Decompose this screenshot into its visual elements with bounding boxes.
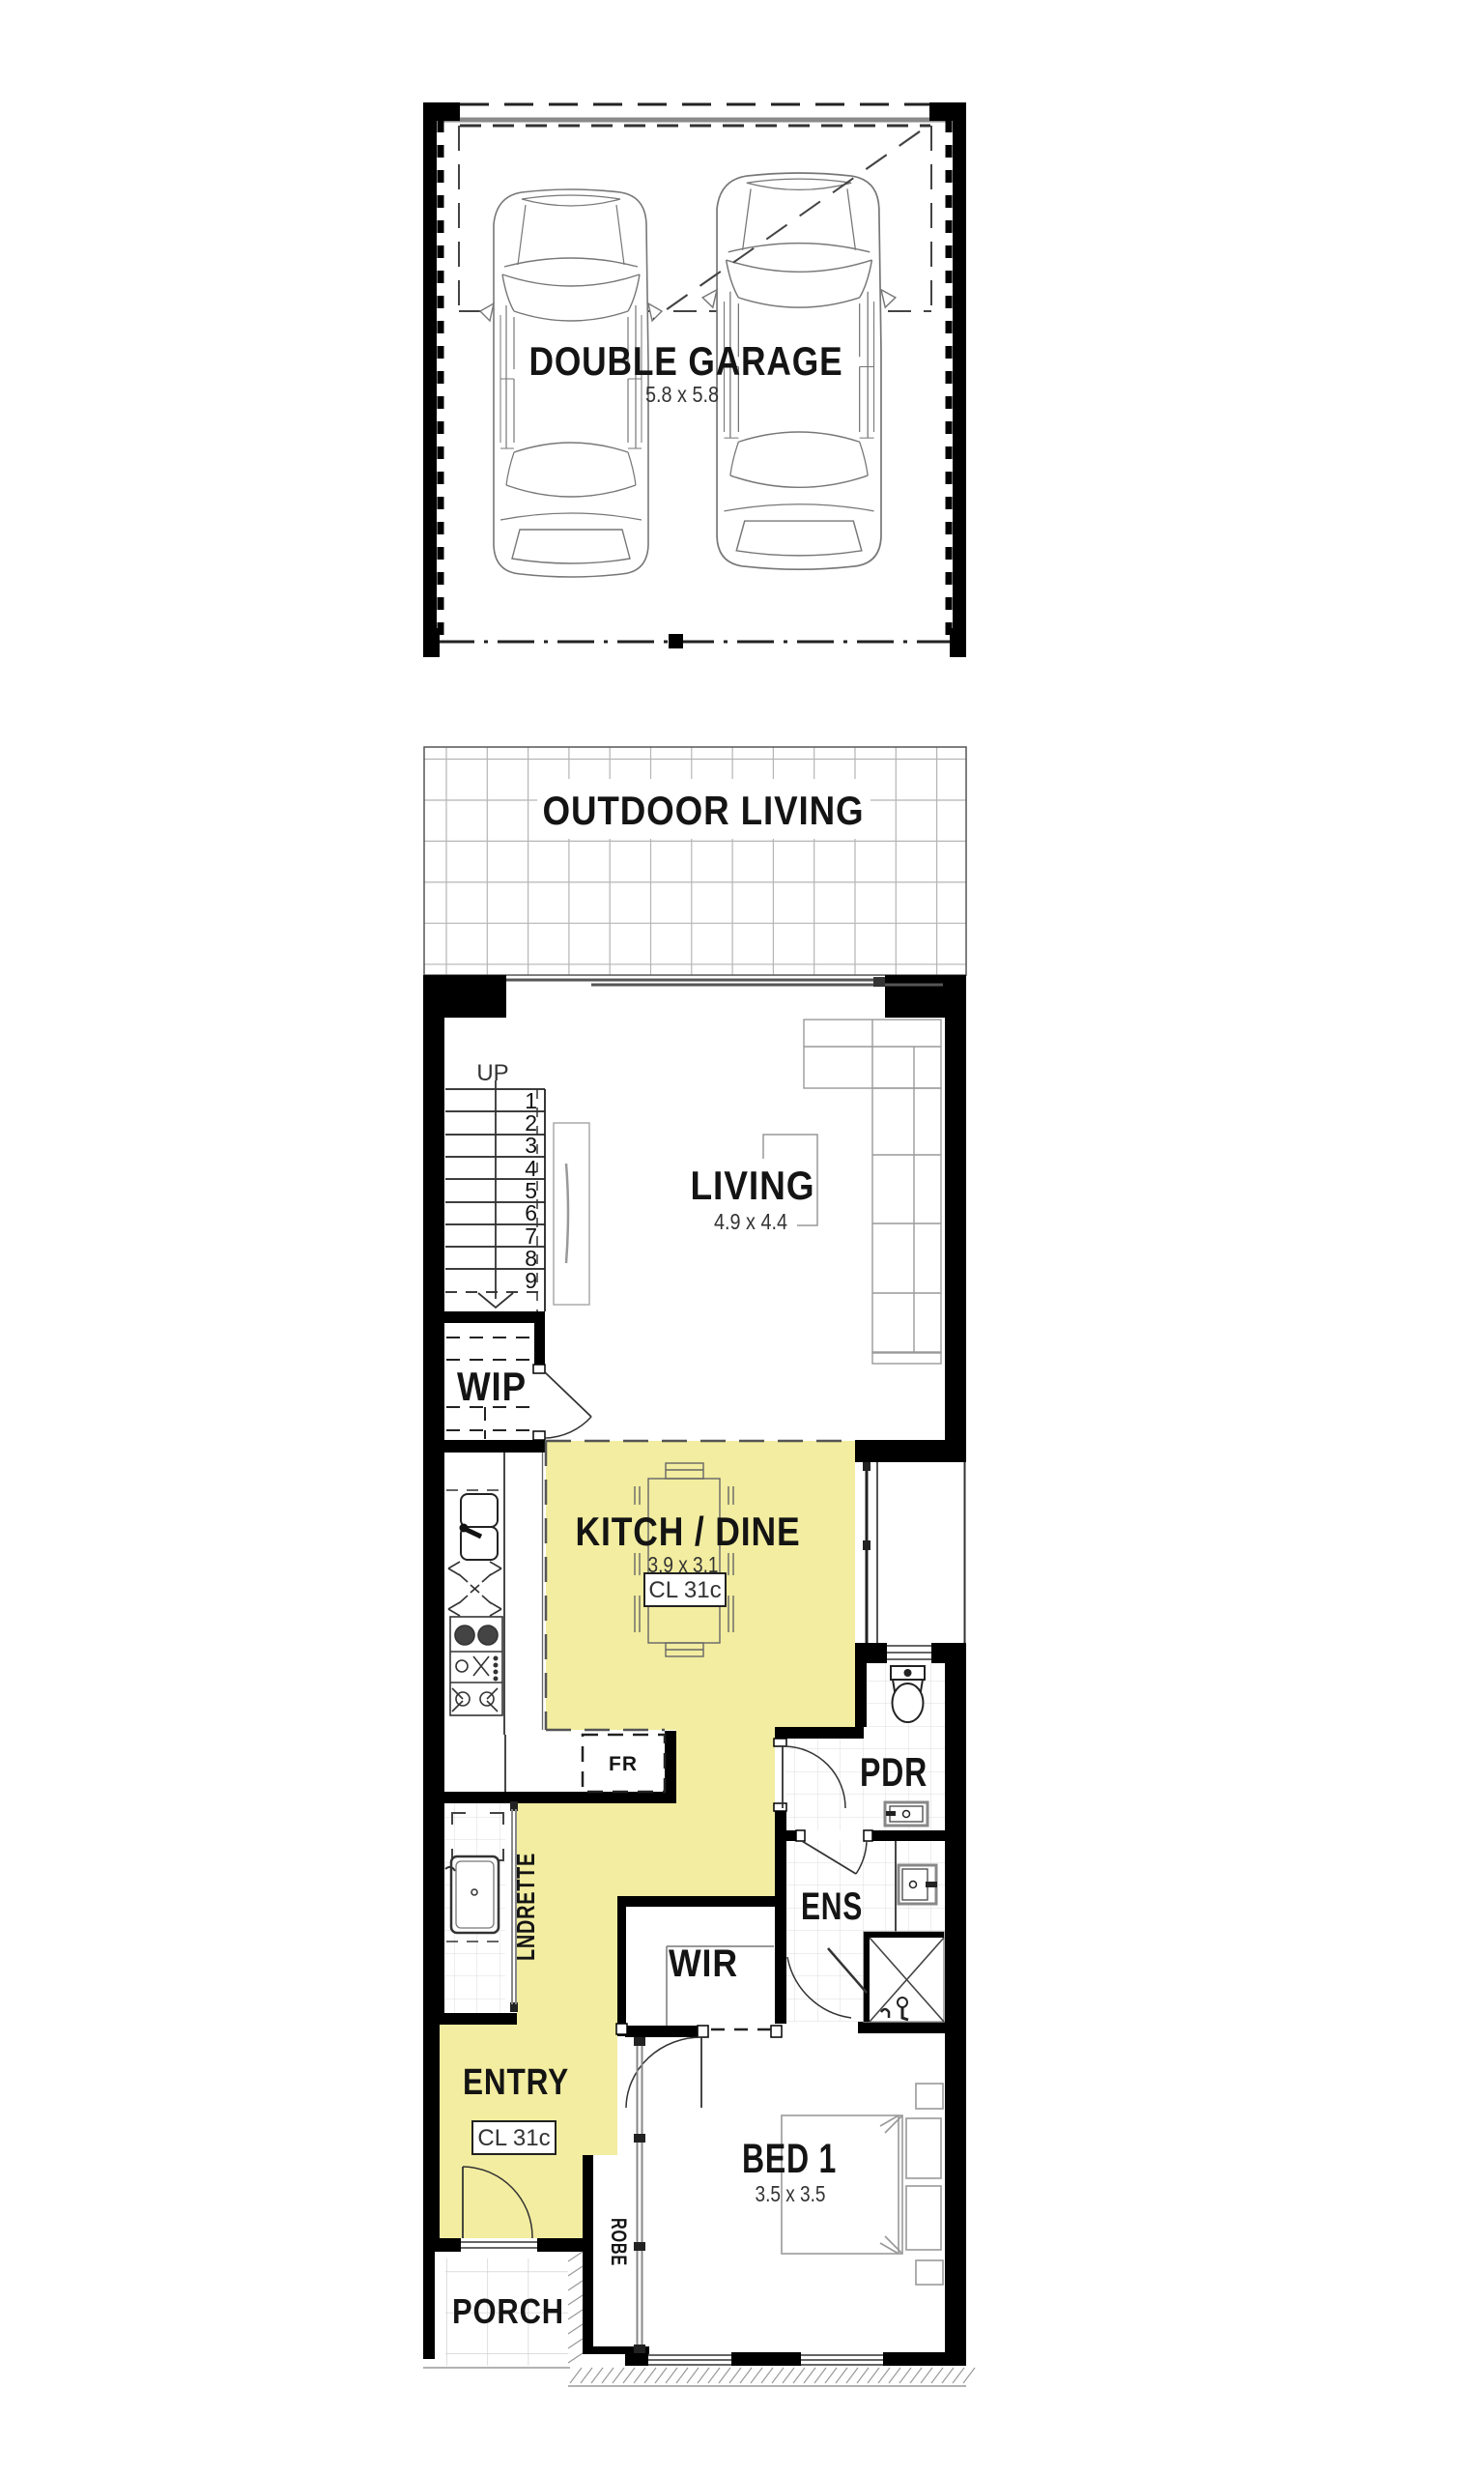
svg-text:4.9 x 4.4: 4.9 x 4.4 [714,1209,787,1234]
svg-text:CL 31c: CL 31c [477,2125,550,2151]
svg-text:FR: FR [609,1753,638,1775]
svg-text:BED 1: BED 1 [742,2136,837,2182]
svg-text:PDR: PDR [860,1749,927,1795]
svg-text:LNDRETTE: LNDRETTE [511,1853,540,1961]
svg-text:WIP: WIP [457,1364,527,1409]
svg-text:CL 31c: CL 31c [648,1577,721,1603]
svg-text:WIR: WIR [669,1942,738,1985]
svg-text:ENTRY: ENTRY [463,2062,569,2103]
svg-text:3.5 x 3.5: 3.5 x 3.5 [756,2181,826,2206]
svg-text:9: 9 [525,1268,537,1293]
svg-text:UP: UP [476,1060,508,1086]
svg-text:3: 3 [525,1133,537,1158]
svg-text:KITCH / DINE: KITCH / DINE [576,1509,801,1554]
svg-text:OUTDOOR LIVING: OUTDOOR LIVING [543,788,865,833]
svg-text:ROBE: ROBE [607,2218,631,2266]
svg-text:6: 6 [525,1200,537,1225]
svg-text:PORCH: PORCH [452,2291,564,2331]
svg-text:5.8 x 5.8: 5.8 x 5.8 [645,382,719,407]
svg-text:ENS: ENS [801,1885,863,1928]
svg-text:DOUBLE GARAGE: DOUBLE GARAGE [529,338,843,384]
svg-text:LIVING: LIVING [691,1163,815,1208]
